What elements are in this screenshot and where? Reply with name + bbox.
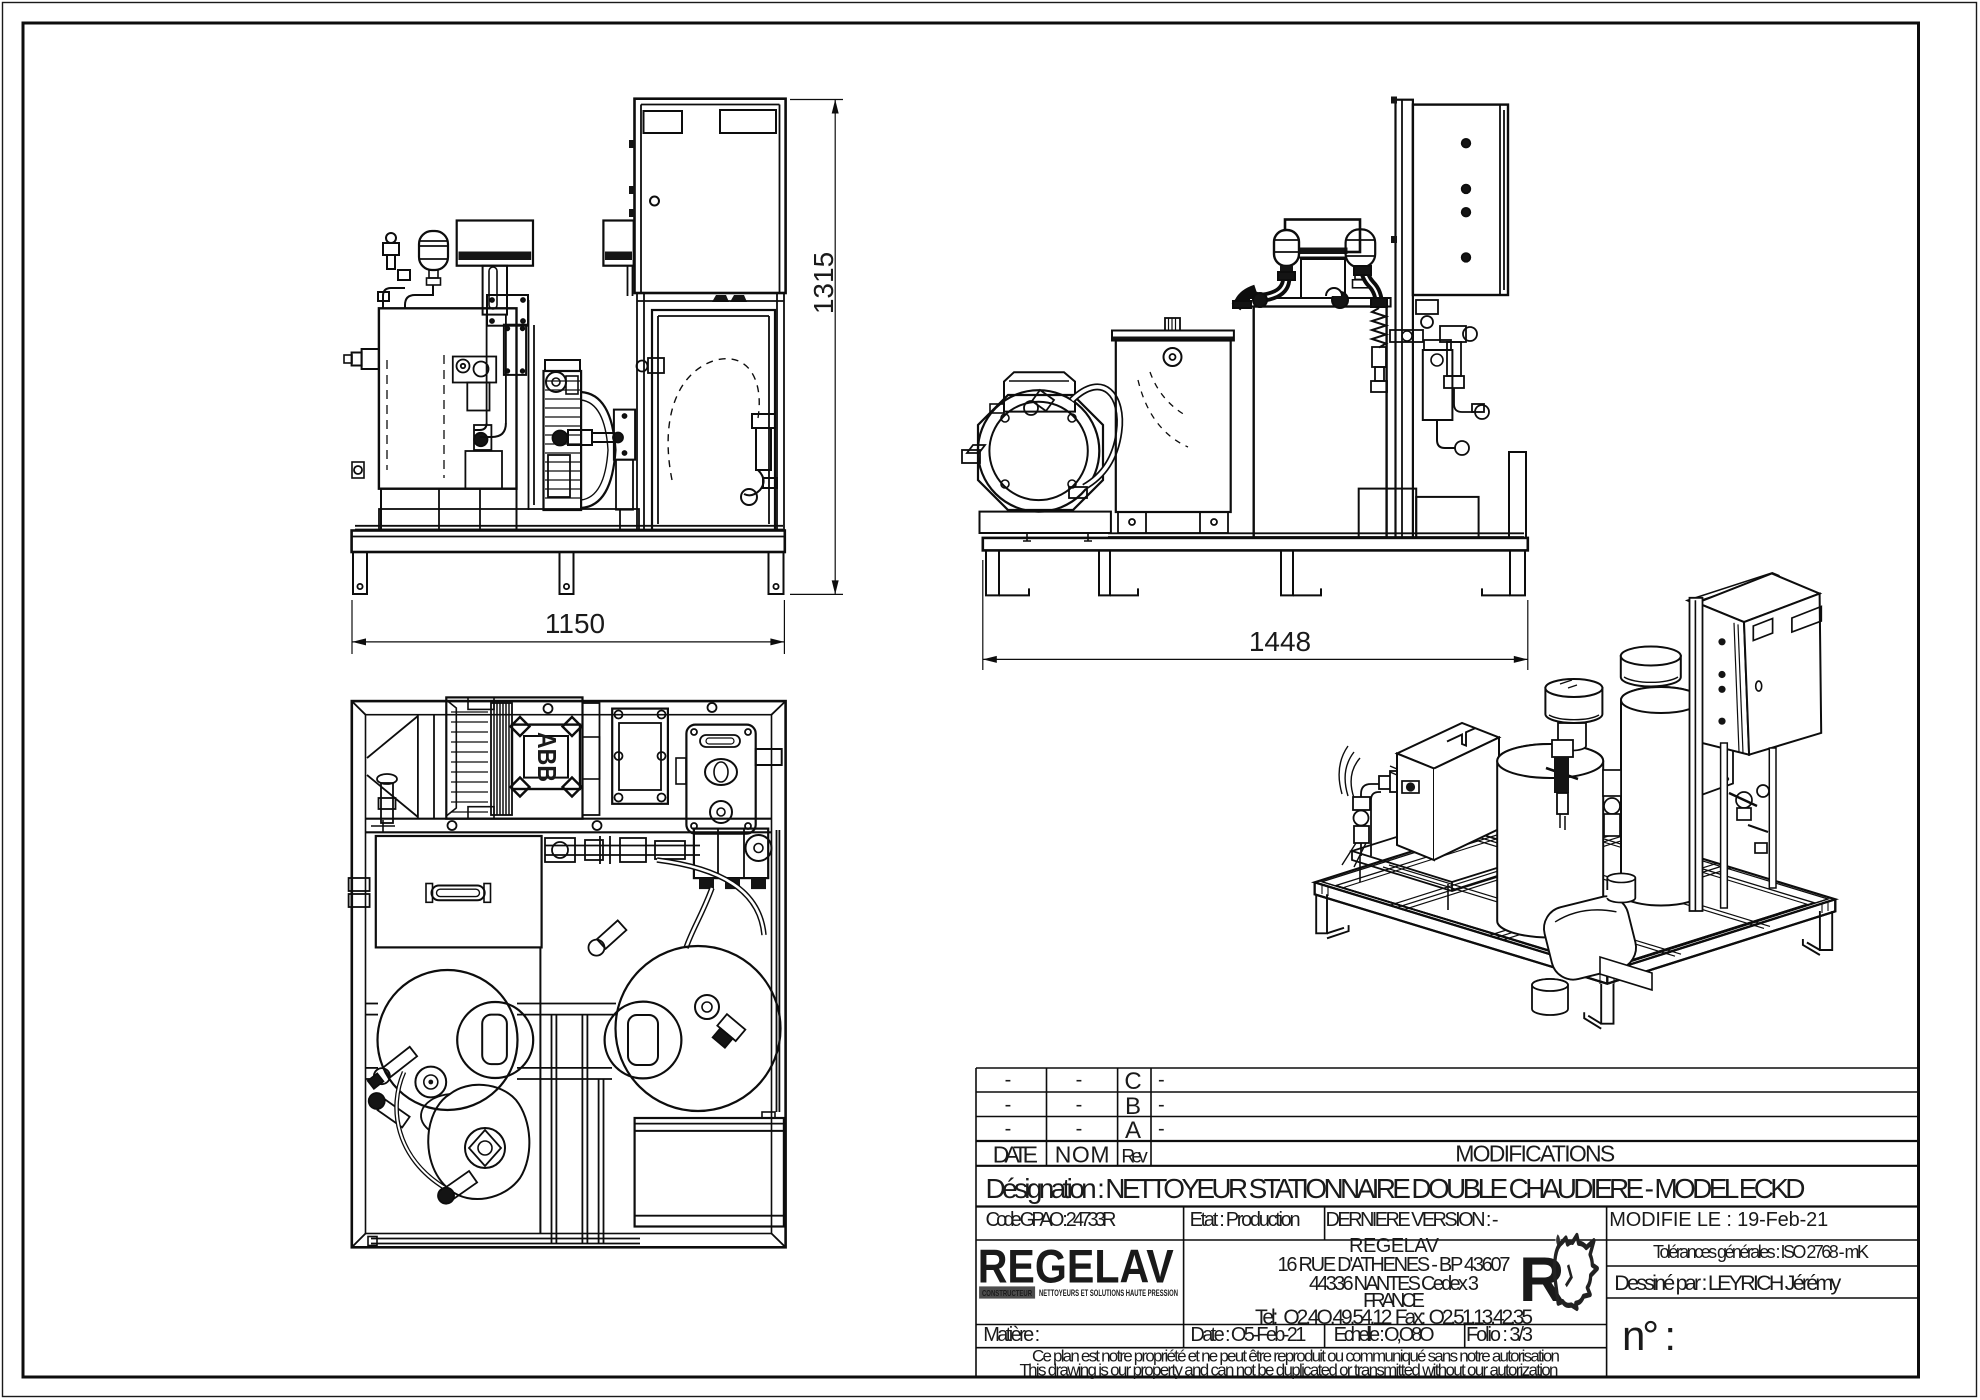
svg-text:-: - <box>1158 1069 1165 1091</box>
svg-text:-: - <box>1076 1069 1083 1091</box>
svg-text:-: - <box>1076 1118 1083 1140</box>
svg-text:-: - <box>1005 1118 1012 1140</box>
svg-text:-: - <box>1005 1094 1012 1116</box>
svg-text:Matière :: Matière : <box>983 1324 1040 1346</box>
svg-text:Date : O5-Feb-21: Date : O5-Feb-21 <box>1190 1324 1306 1346</box>
svg-text:ABB: ABB <box>532 732 562 782</box>
svg-text:-: - <box>1005 1069 1012 1091</box>
svg-text:-: - <box>1076 1094 1083 1116</box>
svg-text:C: C <box>1124 1068 1141 1095</box>
svg-text:DERNIERE VERSION : -: DERNIERE VERSION : - <box>1326 1209 1499 1231</box>
svg-text:1315: 1315 <box>808 252 839 314</box>
svg-text:NETTOYEURS ET SOLUTIONS HAUTE: NETTOYEURS ET SOLUTIONS HAUTE PRESSION <box>1039 1288 1178 1299</box>
svg-text:NOM: NOM <box>1055 1142 1110 1168</box>
svg-text:Désignation : NETTOYEUR STATIO: Désignation : NETTOYEUR STATIONNAIRE DOU… <box>986 1173 1806 1204</box>
svg-text:1448: 1448 <box>1249 626 1311 657</box>
svg-text:Etat : Production: Etat : Production <box>1190 1209 1301 1231</box>
svg-text:Folio : 3/3: Folio : 3/3 <box>1466 1324 1533 1346</box>
svg-text:MODIFIE LE : 19-Feb-21: MODIFIE LE : 19-Feb-21 <box>1609 1209 1828 1231</box>
svg-text:1150: 1150 <box>545 608 605 639</box>
svg-text:Rev: Rev <box>1121 1147 1148 1168</box>
svg-text:n° :: n° : <box>1622 1312 1676 1359</box>
svg-text:A: A <box>1125 1117 1141 1144</box>
svg-text:Code GPAO : 24733R: Code GPAO : 24733R <box>986 1209 1117 1231</box>
svg-text:Dessiné par : LEYRICH Jérémy: Dessiné par : LEYRICH Jérémy <box>1614 1271 1841 1295</box>
svg-text:This drawing is our property a: This drawing is our property and can not… <box>1020 1361 1559 1380</box>
svg-text:Echelle : O,O8O: Echelle : O,O8O <box>1334 1324 1435 1346</box>
svg-text:REGELAV: REGELAV <box>978 1239 1175 1292</box>
svg-text:B: B <box>1125 1093 1141 1120</box>
svg-text:DATE: DATE <box>993 1142 1038 1168</box>
svg-text:-: - <box>1158 1118 1165 1140</box>
svg-text:MODIFICATIONS: MODIFICATIONS <box>1455 1141 1615 1167</box>
svg-text:CONSTRUCTEUR: CONSTRUCTEUR <box>982 1288 1032 1298</box>
svg-text:Tolérances générales : ISO 276: Tolérances générales : ISO 2768 - mK <box>1653 1242 1869 1262</box>
svg-text:-: - <box>1158 1094 1165 1116</box>
